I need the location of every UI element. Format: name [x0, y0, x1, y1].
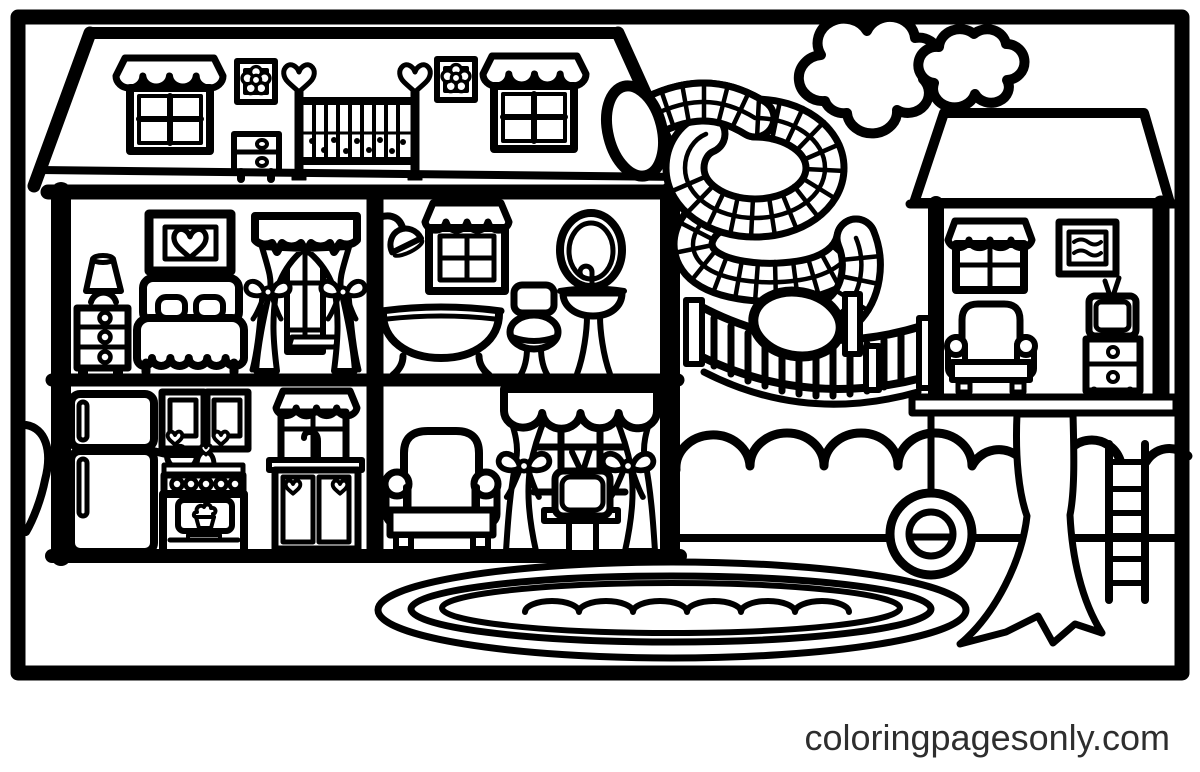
- svg-text:coloringpagesonly.com: coloringpagesonly.com: [804, 717, 1170, 758]
